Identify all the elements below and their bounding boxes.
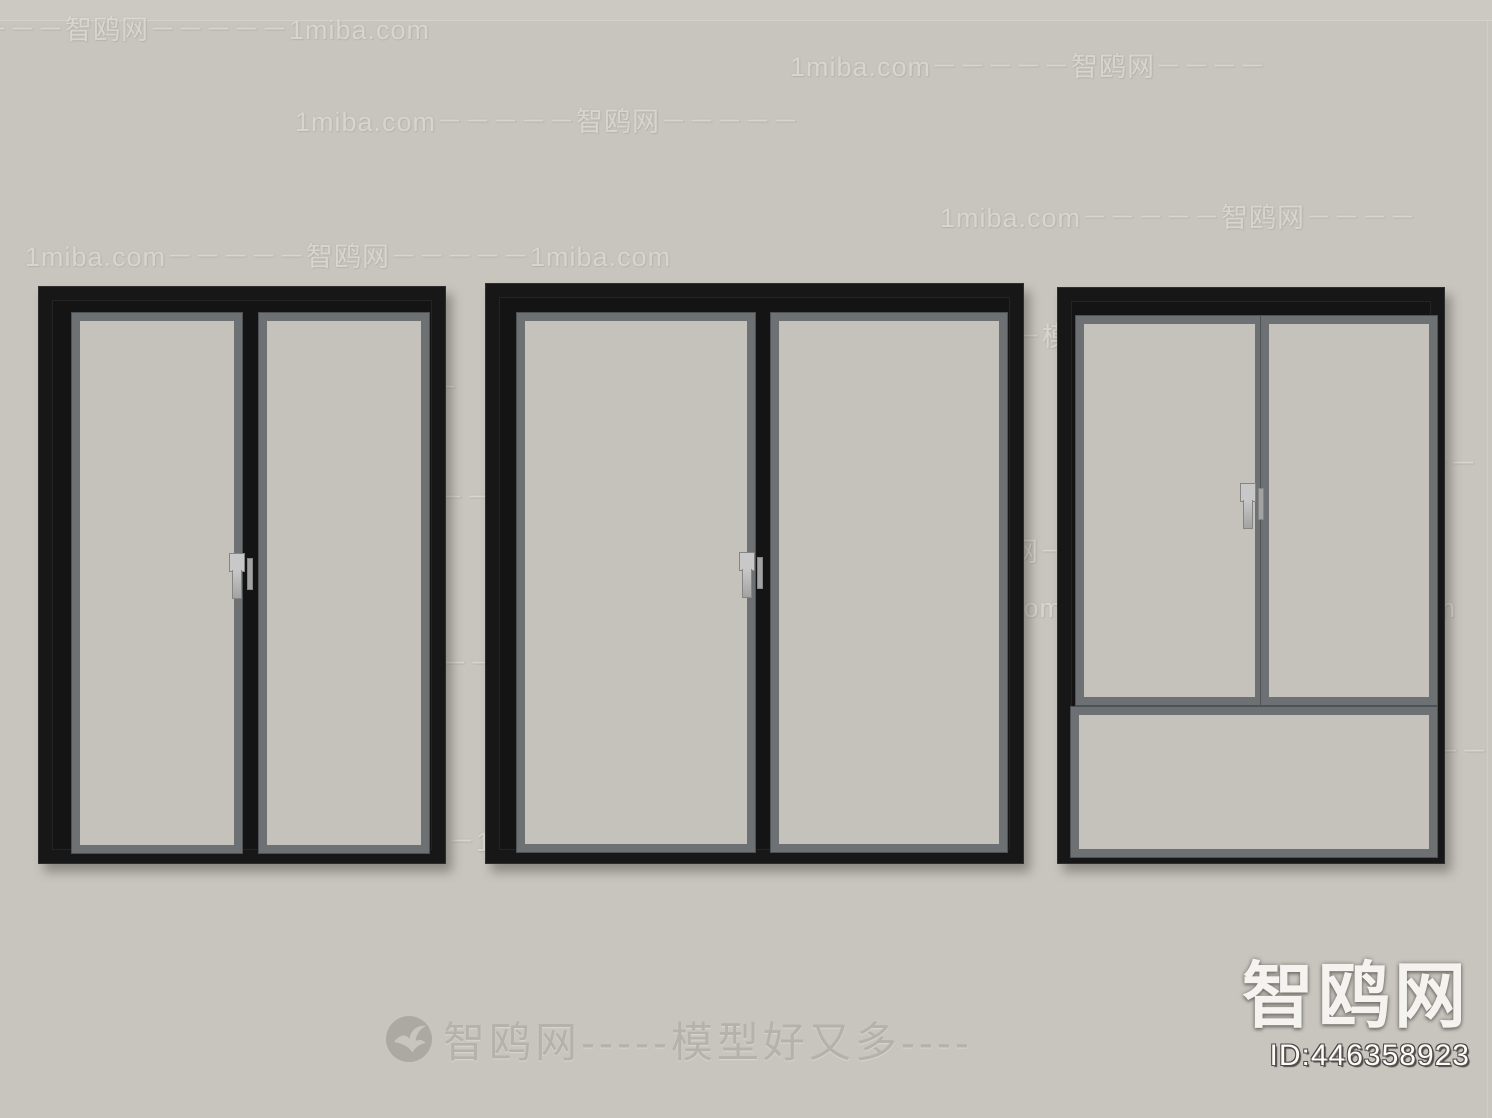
handle-latch	[757, 557, 763, 589]
handle-bar	[1243, 500, 1253, 529]
watermark-text: 1miba.com－－－－－智鸥网－－－－	[790, 45, 1267, 84]
wall-seam-horizontal	[0, 20, 1492, 21]
handle-bar	[232, 570, 242, 599]
wall-seam-vertical	[1487, 20, 1488, 1118]
model-id: ID:446358923	[1242, 1039, 1470, 1073]
footer-watermark-text: 智鸥网-----模型好又多----	[443, 1009, 973, 1070]
glass-pane-right	[771, 313, 1007, 852]
glass-pane-top-right	[1261, 316, 1437, 705]
handle-latch	[247, 558, 253, 590]
window-middle-double-casement	[485, 283, 1024, 864]
window-right-casement-with-transom	[1057, 287, 1445, 864]
site-badge: 智鸥网 ID:446358923	[1242, 958, 1470, 1073]
seagull-icon	[385, 1015, 433, 1063]
footer-brand-watermark: 智鸥网-----模型好又多----	[385, 1012, 973, 1066]
glass-pane-top-left	[1076, 316, 1263, 705]
watermark-text: 1miba.com－－－－－智鸥网－－－－－1miba.com	[25, 235, 671, 274]
watermark-text: 1miba.com－－－－－智鸥网－－－－－	[295, 100, 800, 139]
glass-pane-right	[259, 313, 429, 853]
handle-bar	[742, 569, 752, 598]
scene-3d-window-models: －－－－－智鸥网－－－－－1miba.com1miba.com－－－－－智鸥网－…	[0, 0, 1492, 1118]
glass-pane-bottom-fixed	[1071, 707, 1437, 857]
glass-pane-left	[517, 313, 755, 852]
window-left-double-casement	[38, 286, 446, 864]
wall-top-strip	[0, 0, 1492, 20]
handle-latch	[1258, 488, 1264, 520]
site-name: 智鸥网	[1242, 958, 1470, 1037]
glass-pane-left	[72, 313, 242, 853]
watermark-text: 1miba.com－－－－－智鸥网－－－－	[940, 196, 1417, 235]
